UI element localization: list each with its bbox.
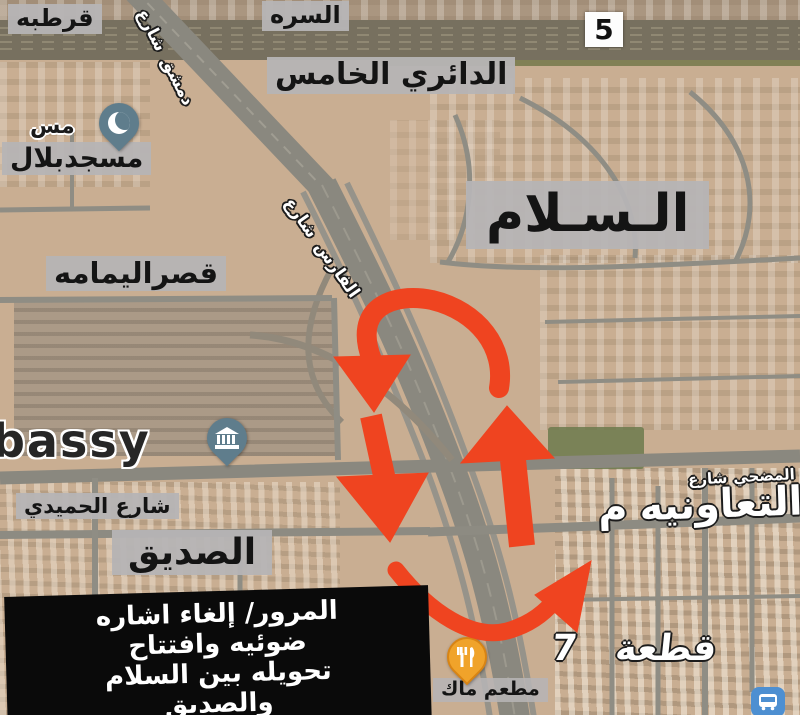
up-arrow-shaft [513, 460, 522, 546]
down-arrowhead [337, 473, 428, 542]
uturn-arrowhead-down [334, 355, 410, 412]
traffic-announcement-box: المرور/ إلغاء اشاره ضوئيه وافتتاح تحويله… [4, 585, 432, 715]
satellite-map[interactable]: شارع دمشق شارع الفارس شارع المضحي م التع… [0, 0, 800, 715]
up-arrowhead [461, 406, 554, 463]
down-arrow-shaft [371, 416, 385, 480]
